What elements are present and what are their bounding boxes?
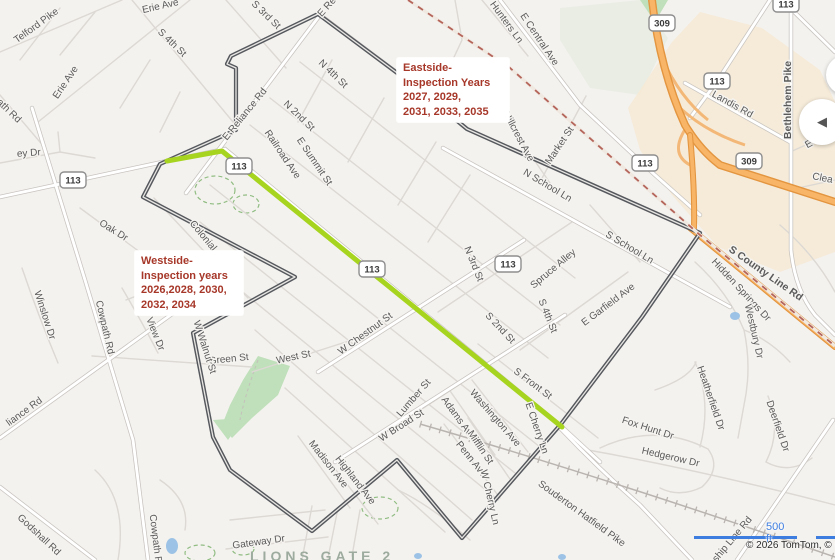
chevron-left-icon: ◀	[817, 114, 827, 130]
street-label: E Garfield Ave	[580, 281, 638, 328]
annotation-line: Inspection Years	[403, 76, 503, 91]
street-label: Deerfield Dr	[763, 399, 791, 454]
street-label: Railroad Ave	[262, 128, 303, 181]
annotation-line: 2032, 2034	[141, 298, 237, 313]
route-shield: 309	[741, 157, 757, 168]
street-label: Oak Dr	[97, 218, 130, 244]
annotation-line: Westside-	[141, 254, 237, 269]
street-label: Cowpath Rd	[93, 299, 116, 355]
street-label: S 3rd St	[249, 0, 283, 32]
annotation-line: 2026,2028, 2030,	[141, 283, 237, 298]
street-label: ey Dr	[17, 147, 42, 160]
street-label: S Front St	[511, 366, 554, 402]
street-label: S 2nd St	[483, 311, 517, 347]
annotation-line: Inspection years	[141, 269, 237, 284]
street-label: S 4th St	[155, 27, 188, 60]
westside-inspection-annotation: Westside- Inspection years 2026,2028, 20…	[135, 251, 243, 315]
street-label: Winslow Dr	[31, 289, 57, 341]
map-attribution: © 2026 TomTom, © Open	[746, 540, 835, 551]
street-label: Erie Ave	[141, 0, 180, 16]
route-shield: 113	[65, 176, 80, 187]
street-label: Erie Ave	[51, 64, 81, 101]
annotation-line: 2027, 2029,	[403, 90, 503, 105]
eastside-inspection-annotation: Eastside- Inspection Years 2027, 2029, 2…	[397, 58, 509, 122]
route-shield: 113	[500, 260, 515, 271]
street-label: Souderton Hatfield Pike	[536, 479, 628, 550]
street-label: Heatherfield Dr	[694, 365, 727, 433]
scale-bar-segment	[816, 536, 835, 539]
street-label: E Cherry Ln	[522, 401, 550, 455]
route-shield: 113	[364, 265, 379, 276]
street-label: E Central Ave	[517, 11, 560, 68]
annotation-line: 2031, 2033, 2035	[403, 105, 503, 120]
street-label: Telford Pike	[12, 6, 61, 46]
annotation-line: Eastside-	[403, 61, 503, 76]
street-label: N 2nd St	[281, 99, 317, 134]
route-shield: 113	[637, 159, 652, 170]
route-shield: 309	[654, 19, 670, 30]
neighborhood-label: LIONS GATE 2	[250, 548, 480, 560]
route-shield: 113	[778, 0, 793, 11]
route-shield: 113	[709, 77, 724, 88]
street-label: W Chestnut St	[336, 310, 395, 357]
street-label: Market St	[543, 125, 576, 167]
street-label: Bethlehem Pike	[782, 61, 794, 139]
street-label: E Re	[316, 0, 339, 19]
street-label: ath Rd	[0, 97, 23, 125]
street-label: Spruce Alley	[529, 247, 579, 291]
street-label: S School Ln	[603, 229, 655, 266]
street-label: N 4th St	[316, 58, 350, 91]
route-shield: 113	[231, 162, 246, 173]
